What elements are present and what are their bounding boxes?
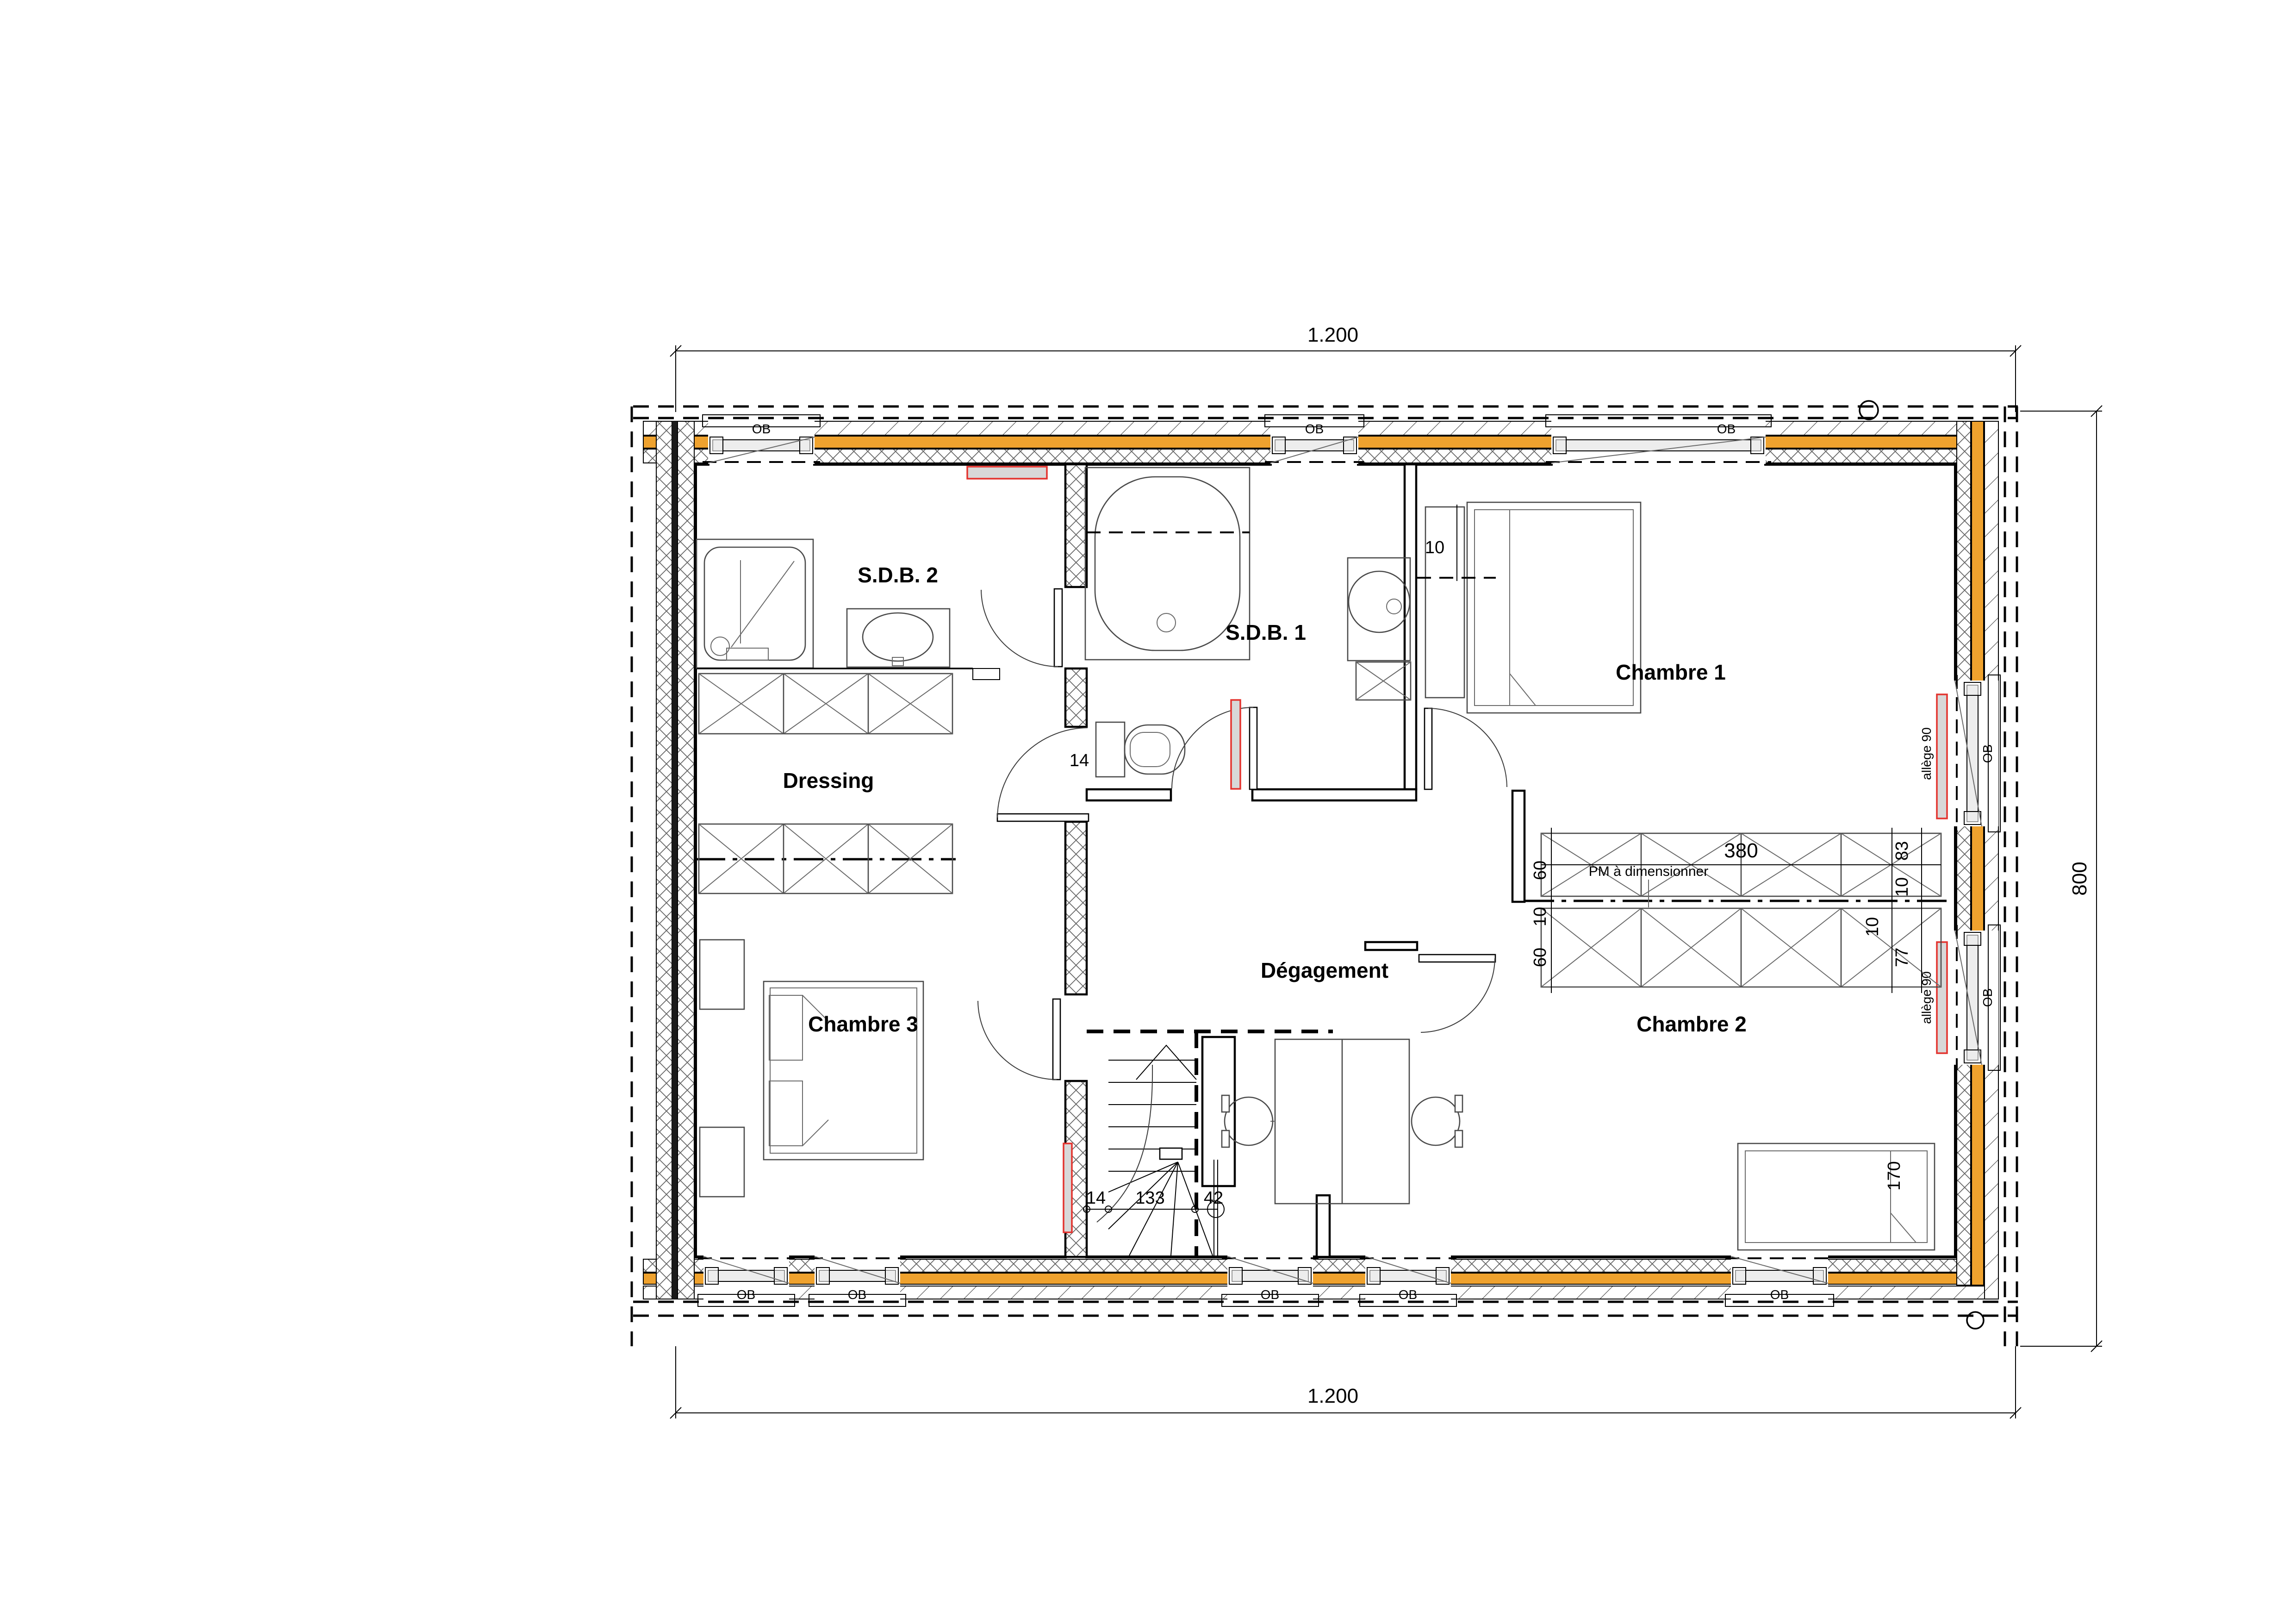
window-bottom-5: OB: [1725, 1255, 1834, 1306]
dimension-bottom: 1.200: [670, 1346, 2021, 1418]
door-dressing: [997, 728, 1089, 821]
window-label: OB: [1261, 1287, 1279, 1302]
door-sdb2: [981, 589, 1062, 667]
dim-height-right: 800: [2068, 862, 2091, 895]
chambre3-furniture: [700, 940, 1072, 1232]
floor-plan: OB OB OB OB: [0, 0, 2296, 1624]
allege-label: allège 90: [1919, 727, 1934, 780]
radiator: [967, 467, 1047, 479]
nightstand: [700, 940, 744, 1009]
window-top-chambre1: OB: [1546, 415, 1771, 464]
window-label: OB: [1399, 1287, 1417, 1302]
desks: [1222, 1039, 1462, 1204]
window-label: OB: [848, 1287, 866, 1302]
room-label-chambre3: Chambre 3: [808, 1012, 918, 1036]
window-bottom-4: OB: [1360, 1255, 1456, 1306]
bed-single: [1467, 502, 1641, 713]
chair: [1412, 1095, 1462, 1147]
room-label-dressing: Dressing: [783, 768, 874, 793]
room-label-sdb1: S.D.B. 1: [1226, 620, 1306, 644]
radiator: [1937, 942, 1947, 1053]
window-bottom-2: OB: [809, 1255, 906, 1306]
room-label-chambre2: Chambre 2: [1636, 1012, 1747, 1036]
dim-stair14: 14: [1086, 1188, 1106, 1208]
stairs: 14 133 42: [1083, 1031, 1333, 1255]
window-right-chambre1: OB allège 90: [1919, 675, 2000, 832]
stair-arrow: [1136, 1045, 1196, 1080]
room-label-chambre1: Chambre 1: [1616, 660, 1726, 684]
window-label: OB: [1980, 744, 1995, 763]
bathtub: [1085, 468, 1250, 660]
chambre1-furniture: 10: [1417, 502, 1641, 713]
dim-stair133: 133: [1135, 1188, 1164, 1208]
dim-closet77: 77: [1892, 948, 1912, 967]
dim-closet10a: 10: [1892, 877, 1912, 897]
closet-note: PM à dimensionner: [1589, 864, 1708, 879]
dim-closet380: 380: [1724, 839, 1758, 862]
stair-rail: [1202, 1037, 1235, 1186]
window-top-sdb1: OB: [1265, 415, 1364, 464]
radiator: [1064, 1143, 1072, 1232]
closets: 60 380 PM à dimensionner 83 10 10 60 10 …: [1531, 828, 1941, 993]
dim-width-bottom: 1.200: [1307, 1385, 1358, 1407]
dim-width-top: 1.200: [1307, 324, 1358, 346]
radiator: [1231, 700, 1240, 789]
bed-double: [764, 981, 923, 1160]
shower: [697, 539, 813, 668]
dim-closet83: 83: [1892, 841, 1912, 861]
window-label: OB: [752, 422, 771, 436]
vent-marker: [1860, 401, 1878, 419]
sink: [1348, 558, 1410, 661]
toilet: [1096, 722, 1185, 777]
dim-closet10b: 10: [1531, 907, 1550, 926]
dim-bed170: 170: [1885, 1161, 1904, 1190]
sink: [847, 609, 950, 667]
dim-wall10: 10: [1425, 538, 1444, 557]
window-label: OB: [1717, 422, 1736, 436]
window-label: OB: [1980, 988, 1995, 1007]
window-top-sdb2: OB: [703, 415, 820, 464]
chambre2-furniture: 170: [1738, 1143, 1935, 1250]
dim-closet60a: 60: [1531, 861, 1550, 880]
radiator: [1937, 694, 1947, 818]
dimension-top: 1.200: [670, 324, 2021, 412]
dim-stair42: 42: [1204, 1188, 1223, 1208]
dim-sdb-wall14: 14: [1070, 751, 1089, 770]
vanity-cabinet: [699, 674, 952, 734]
dim-closet60b: 60: [1531, 948, 1550, 967]
sdb2-fixtures: [697, 467, 1047, 734]
dimension-right: 800: [2020, 406, 2102, 1352]
dim-closet10c: 10: [1863, 917, 1882, 937]
bench: [1425, 507, 1464, 698]
window-bottom-1: OB: [698, 1255, 795, 1306]
room-label-sdb2: S.D.B. 2: [858, 563, 938, 587]
door-chambre3: [978, 999, 1060, 1080]
nightstand: [700, 1127, 744, 1197]
cabinet: [1356, 662, 1411, 700]
window-label: OB: [737, 1287, 755, 1302]
door-chambre2: [1419, 955, 1495, 1032]
vent-marker: [1967, 1312, 1984, 1329]
party-wall: [656, 421, 694, 1299]
window-right-chambre2: OB allège 90: [1919, 925, 2000, 1070]
window-label: OB: [1305, 422, 1324, 436]
window-label: OB: [1770, 1287, 1789, 1302]
door-chambre1: [1425, 708, 1507, 789]
window-bottom-3: OB: [1222, 1255, 1319, 1306]
room-label-degagement: Dégagement: [1261, 958, 1388, 982]
